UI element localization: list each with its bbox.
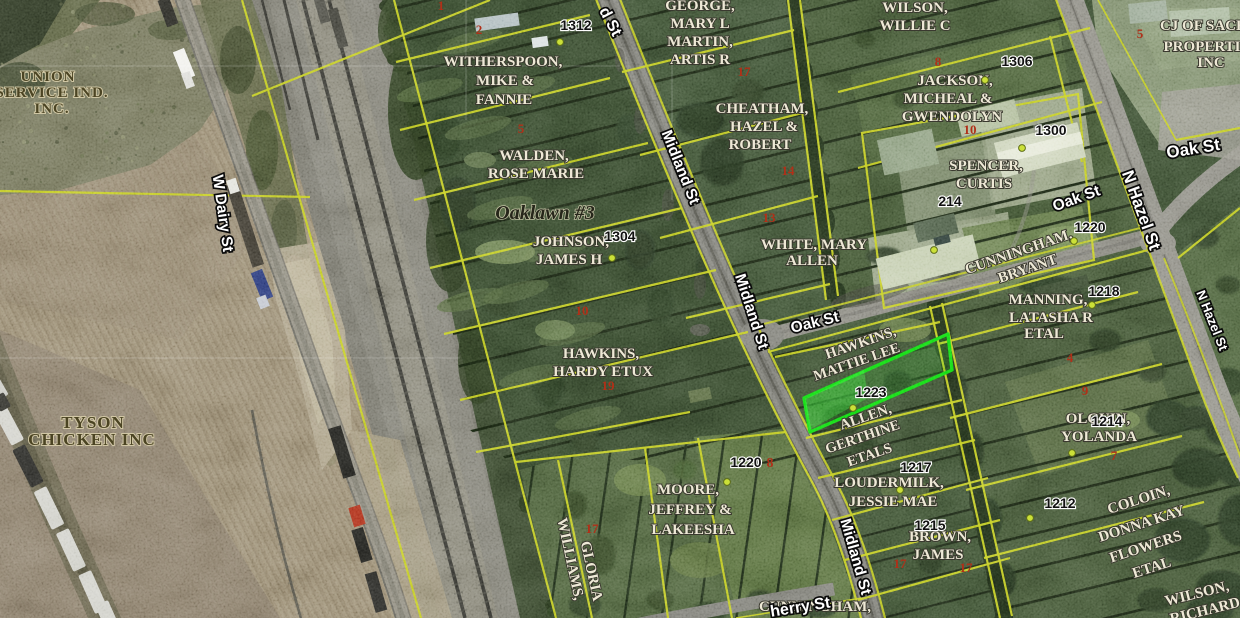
svg-text:1220: 1220 bbox=[730, 454, 761, 470]
svg-text:WILSON,: WILSON, bbox=[882, 0, 948, 16]
svg-text:CURTIS: CURTIS bbox=[956, 176, 1012, 192]
svg-text:1306: 1306 bbox=[1001, 53, 1032, 69]
svg-text:LOUDERMILK,: LOUDERMILK, bbox=[834, 475, 944, 491]
svg-text:FANNIE: FANNIE bbox=[476, 92, 532, 108]
svg-text:CHICKEN INC: CHICKEN INC bbox=[28, 430, 156, 449]
svg-text:CHEATHAM,: CHEATHAM, bbox=[716, 101, 809, 117]
svg-text:4: 4 bbox=[1067, 350, 1074, 365]
svg-text:MICHEAL &: MICHEAL & bbox=[904, 91, 993, 107]
svg-text:17: 17 bbox=[586, 521, 600, 536]
svg-text:1215: 1215 bbox=[914, 517, 945, 533]
svg-text:1304: 1304 bbox=[604, 228, 635, 244]
svg-text:ARTIS R: ARTIS R bbox=[670, 52, 730, 68]
svg-text:1312: 1312 bbox=[560, 17, 591, 33]
svg-text:9: 9 bbox=[1082, 383, 1089, 398]
svg-text:JEFFREY &: JEFFREY & bbox=[648, 502, 731, 518]
svg-text:LATASHA R: LATASHA R bbox=[1009, 310, 1093, 326]
svg-text:2: 2 bbox=[476, 22, 483, 37]
svg-text:HAWKINS,: HAWKINS, bbox=[563, 346, 640, 362]
svg-text:10: 10 bbox=[964, 122, 977, 137]
svg-text:17: 17 bbox=[738, 64, 752, 79]
svg-text:17: 17 bbox=[960, 560, 974, 575]
svg-text:1214: 1214 bbox=[1091, 413, 1122, 429]
svg-text:1223: 1223 bbox=[855, 384, 886, 400]
svg-text:JAMES: JAMES bbox=[913, 547, 964, 563]
svg-text:MARTIN,: MARTIN, bbox=[667, 34, 733, 50]
svg-text:19: 19 bbox=[602, 378, 616, 393]
svg-text:JESSIE MAE: JESSIE MAE bbox=[849, 494, 938, 510]
svg-text:JAMES H: JAMES H bbox=[536, 252, 603, 268]
svg-text:CJ OF SACE: CJ OF SACE bbox=[1160, 18, 1240, 34]
svg-text:SERVICE IND.: SERVICE IND. bbox=[0, 85, 109, 101]
svg-text:ALLEN: ALLEN bbox=[786, 253, 838, 269]
svg-text:8: 8 bbox=[935, 54, 942, 69]
svg-text:17: 17 bbox=[894, 556, 908, 571]
svg-text:MANNING,: MANNING, bbox=[1009, 292, 1088, 308]
svg-text:YOLANDA: YOLANDA bbox=[1061, 429, 1137, 445]
svg-text:GEORGE,: GEORGE, bbox=[665, 0, 735, 14]
svg-text:214: 214 bbox=[938, 193, 962, 209]
svg-text:WHITE, MARY: WHITE, MARY bbox=[761, 237, 867, 253]
svg-text:UNION: UNION bbox=[20, 69, 75, 85]
svg-text:1212: 1212 bbox=[1044, 495, 1075, 511]
svg-text:PROPERTIE: PROPERTIE bbox=[1164, 39, 1240, 55]
svg-text:7: 7 bbox=[1111, 448, 1118, 463]
svg-text:WALDEN,: WALDEN, bbox=[499, 148, 569, 164]
svg-text:1217: 1217 bbox=[900, 459, 931, 475]
svg-text:14: 14 bbox=[782, 163, 796, 178]
svg-text:5: 5 bbox=[1137, 26, 1144, 41]
svg-text:MOORE,: MOORE, bbox=[657, 482, 719, 498]
svg-text:1218: 1218 bbox=[1088, 283, 1119, 299]
svg-text:8: 8 bbox=[767, 456, 774, 471]
svg-text:WILLIE C: WILLIE C bbox=[879, 18, 950, 34]
svg-text:HAZEL &: HAZEL & bbox=[730, 119, 798, 135]
svg-text:MIKE &: MIKE & bbox=[476, 73, 534, 89]
svg-text:INC.: INC. bbox=[34, 101, 69, 117]
svg-text:1: 1 bbox=[438, 0, 445, 13]
svg-text:ROBERT: ROBERT bbox=[729, 137, 792, 153]
svg-text:13: 13 bbox=[763, 210, 777, 225]
svg-text:INC: INC bbox=[1197, 55, 1225, 71]
svg-text:GWENDOLYN: GWENDOLYN bbox=[902, 109, 1002, 125]
svg-text:Oaklawn #3: Oaklawn #3 bbox=[495, 202, 594, 224]
svg-text:SPENCER,: SPENCER, bbox=[949, 158, 1023, 174]
svg-text:ETAL: ETAL bbox=[1024, 326, 1064, 342]
svg-text:MARY L: MARY L bbox=[670, 16, 729, 32]
svg-text:LAKEESHA: LAKEESHA bbox=[651, 522, 735, 538]
svg-text:5: 5 bbox=[518, 121, 525, 136]
svg-text:WITHERSPOON,: WITHERSPOON, bbox=[444, 54, 563, 70]
svg-text:10: 10 bbox=[576, 303, 589, 318]
svg-text:1300: 1300 bbox=[1035, 122, 1066, 138]
svg-text:1220: 1220 bbox=[1074, 219, 1105, 235]
svg-text:ROSE MARIE: ROSE MARIE bbox=[488, 166, 584, 182]
svg-text:JOHNSON,: JOHNSON, bbox=[533, 234, 610, 250]
